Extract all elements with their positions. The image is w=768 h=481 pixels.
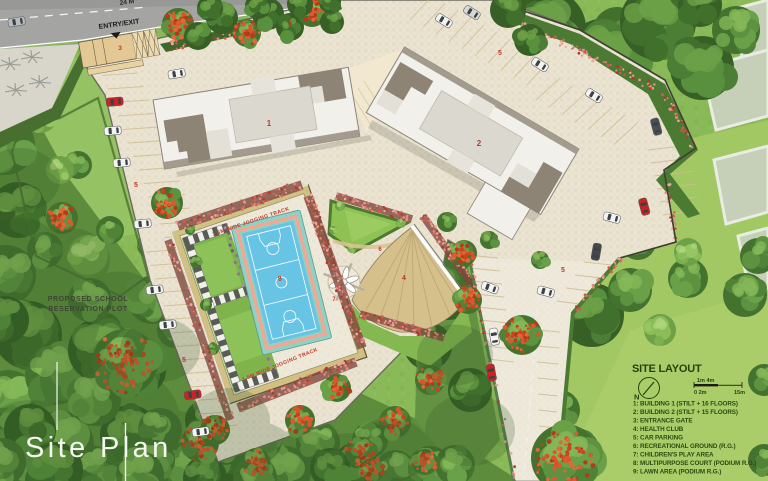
svg-text:15m: 15m xyxy=(734,390,745,396)
svg-text:3: ENTRANCE GATE: 3: ENTRANCE GATE xyxy=(633,418,693,425)
svg-text:5: 5 xyxy=(498,50,502,57)
svg-text:5: 5 xyxy=(561,267,565,274)
svg-text:5: 5 xyxy=(134,182,138,189)
svg-text:1m 4m: 1m 4m xyxy=(697,378,715,384)
svg-text:2: BUILDING 2 (STILT + 15 FLOO: 2: BUILDING 2 (STILT + 15 FLOORS) xyxy=(633,409,738,416)
svg-text:0 2m: 0 2m xyxy=(694,390,707,396)
svg-text:2: 2 xyxy=(477,139,482,148)
svg-text:6: RECREATIONAL GROUND (R.G.): 6: RECREATIONAL GROUND (R.G.) xyxy=(633,443,736,450)
svg-text:4: HEALTH CLUB: 4: HEALTH CLUB xyxy=(633,426,684,433)
svg-text:7: CHILDREN'S PLAY AREA: 7: CHILDREN'S PLAY AREA xyxy=(633,452,714,459)
svg-text:9: LAWN AREA (PODIUM R.G.): 9: LAWN AREA (PODIUM R.G.) xyxy=(633,469,721,476)
svg-text:3: 3 xyxy=(118,45,122,52)
svg-text:4: 4 xyxy=(402,275,406,282)
svg-text:Site Plan: Site Plan xyxy=(25,432,172,464)
svg-text:SITE LAYOUT: SITE LAYOUT xyxy=(632,363,702,375)
svg-text:1: 1 xyxy=(267,119,272,128)
svg-text:5: CAR PARKING: 5: CAR PARKING xyxy=(633,435,683,442)
svg-text:5: 5 xyxy=(182,357,186,364)
svg-text:PROPOSED SCHOOL: PROPOSED SCHOOL xyxy=(48,296,129,303)
svg-text:1: BUILDING 1 (STILT + 16 FLOO: 1: BUILDING 1 (STILT + 16 FLOORS) xyxy=(633,401,738,408)
svg-text:RESERVATION PLOT: RESERVATION PLOT xyxy=(48,306,128,313)
svg-text:8: MULTIPURPOSE COURT (PODIUM: 8: MULTIPURPOSE COURT (PODIUM R.G.) xyxy=(633,460,756,467)
